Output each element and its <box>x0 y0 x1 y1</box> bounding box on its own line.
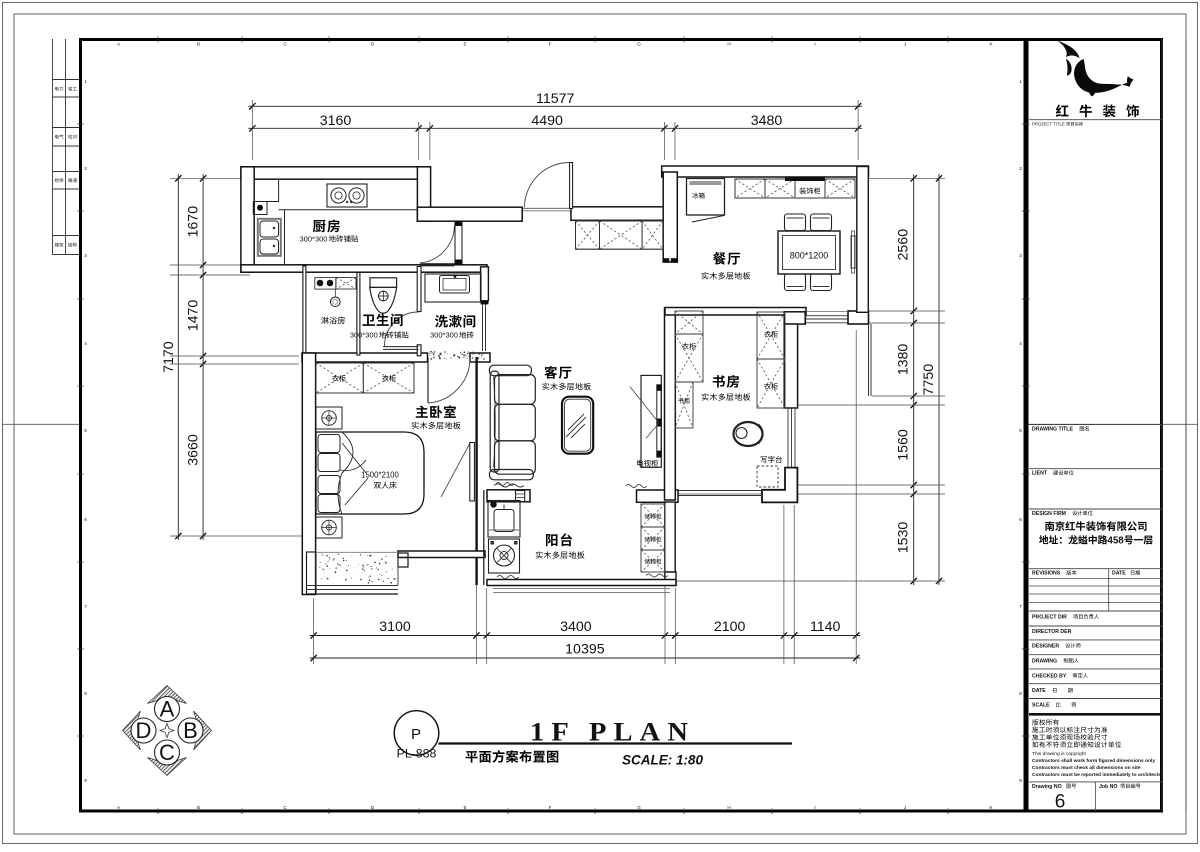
svg-text:300*300: 300*300 <box>300 235 328 244</box>
svg-text:F: F <box>549 42 552 47</box>
svg-text:This drawing is copyright: This drawing is copyright <box>1032 751 1086 757</box>
svg-text:H: H <box>727 805 730 810</box>
svg-text:B: B <box>197 805 200 810</box>
svg-text:DATE: DATE <box>1032 688 1046 694</box>
svg-text:Drawing NO: Drawing NO <box>1032 784 1062 790</box>
svg-text:D: D <box>371 805 375 810</box>
svg-text:300*300: 300*300 <box>350 331 378 340</box>
svg-text:7: 7 <box>84 604 87 609</box>
svg-text:4490: 4490 <box>531 113 563 129</box>
svg-text:A: A <box>117 805 121 810</box>
svg-text:4: 4 <box>1019 341 1022 346</box>
svg-text:F: F <box>549 805 552 810</box>
svg-text:2: 2 <box>84 166 87 171</box>
svg-text:3480: 3480 <box>751 113 783 129</box>
svg-text:CHECKED BY: CHECKED BY <box>1032 673 1067 679</box>
svg-text:5: 5 <box>1019 428 1022 433</box>
svg-text:2560: 2560 <box>896 229 912 261</box>
svg-text:REVISIONS: REVISIONS <box>1032 571 1061 577</box>
svg-text:B: B <box>183 718 198 743</box>
svg-text:G: G <box>637 42 641 47</box>
svg-text:1: 1 <box>84 79 87 84</box>
svg-text:11577: 11577 <box>536 91 575 107</box>
svg-text:1500*2100: 1500*2100 <box>361 471 399 480</box>
svg-text:458: 458 <box>1107 536 1124 547</box>
svg-text:PL-888: PL-888 <box>397 747 437 761</box>
svg-text:4: 4 <box>84 341 87 346</box>
svg-text:6: 6 <box>84 517 87 522</box>
svg-text:I: I <box>814 805 815 810</box>
svg-text:1: 1 <box>1019 79 1022 84</box>
svg-text:Contractors shall work form fi: Contractors shall work form figured dime… <box>1032 758 1155 764</box>
svg-text:H: H <box>727 42 730 47</box>
svg-text:PROJECT DIR: PROJECT DIR <box>1032 615 1067 621</box>
svg-text:1380: 1380 <box>896 344 912 376</box>
svg-text:1470: 1470 <box>186 300 202 332</box>
svg-text:DESIGNER: DESIGNER <box>1032 644 1059 650</box>
svg-text:I: I <box>814 42 815 47</box>
svg-text:C: C <box>283 805 287 810</box>
svg-text:D: D <box>371 42 375 47</box>
svg-text:7: 7 <box>1019 604 1022 609</box>
svg-text:DATE: DATE <box>1112 571 1126 577</box>
svg-text:3: 3 <box>1019 253 1022 258</box>
svg-text:1F PLAN: 1F PLAN <box>530 718 695 747</box>
svg-text:K: K <box>989 805 993 810</box>
svg-text:Contractors must check all dim: Contractors must check all dimensions on… <box>1032 765 1141 771</box>
svg-text:2100: 2100 <box>714 619 746 635</box>
svg-text:3660: 3660 <box>186 434 202 466</box>
svg-text:J: J <box>904 805 906 810</box>
svg-text:300*300: 300*300 <box>430 331 458 340</box>
svg-text:7170: 7170 <box>161 341 177 373</box>
svg-text:K: K <box>989 42 993 47</box>
svg-text:DRAWING: DRAWING <box>1032 659 1057 665</box>
svg-text:E: E <box>463 805 466 810</box>
svg-text:9: 9 <box>84 778 87 783</box>
svg-text:7750: 7750 <box>921 364 937 396</box>
svg-text:1670: 1670 <box>186 206 202 238</box>
svg-text:SCALE: SCALE <box>1032 703 1050 709</box>
svg-text:3160: 3160 <box>320 113 352 129</box>
svg-text:800*1200: 800*1200 <box>790 251 829 261</box>
svg-text:1560: 1560 <box>896 429 912 461</box>
svg-text:1140: 1140 <box>810 619 841 635</box>
svg-text:6: 6 <box>1055 792 1066 813</box>
svg-text:DIRECTOR DER: DIRECTOR DER <box>1032 629 1072 635</box>
svg-text:B: B <box>197 42 200 47</box>
svg-text:1530: 1530 <box>896 522 912 554</box>
svg-text:3: 3 <box>84 253 87 258</box>
svg-text:C: C <box>283 42 287 47</box>
svg-text:D: D <box>136 718 152 743</box>
svg-text:DESIGN FIRM: DESIGN FIRM <box>1032 511 1066 517</box>
svg-text:10395: 10395 <box>565 642 605 658</box>
svg-text:3400: 3400 <box>560 619 592 635</box>
svg-text:A: A <box>117 42 121 47</box>
svg-text:8: 8 <box>84 691 87 696</box>
svg-text:PROJECT TITLE: PROJECT TITLE <box>1032 122 1065 127</box>
svg-text:9: 9 <box>1019 778 1022 783</box>
svg-text:8: 8 <box>1019 691 1022 696</box>
svg-text:J: J <box>904 42 906 47</box>
svg-text:LIENT: LIENT <box>1032 471 1048 477</box>
svg-text:6: 6 <box>1019 517 1022 522</box>
svg-text:Contractors must be reported i: Contractors must be reported immediately… <box>1032 772 1161 778</box>
svg-text:G: G <box>637 805 641 810</box>
svg-text:P: P <box>411 726 421 743</box>
svg-text:5: 5 <box>84 428 87 433</box>
svg-text:2: 2 <box>1019 166 1022 171</box>
svg-text:DRAWING TITLE: DRAWING TITLE <box>1032 427 1073 433</box>
svg-text:Job NO: Job NO <box>1099 784 1117 790</box>
svg-text:C: C <box>159 740 175 765</box>
svg-text:3100: 3100 <box>379 619 411 635</box>
svg-text:SCALE: 1:80: SCALE: 1:80 <box>622 753 704 768</box>
svg-text:E: E <box>463 42 466 47</box>
svg-text:A: A <box>160 697 175 722</box>
